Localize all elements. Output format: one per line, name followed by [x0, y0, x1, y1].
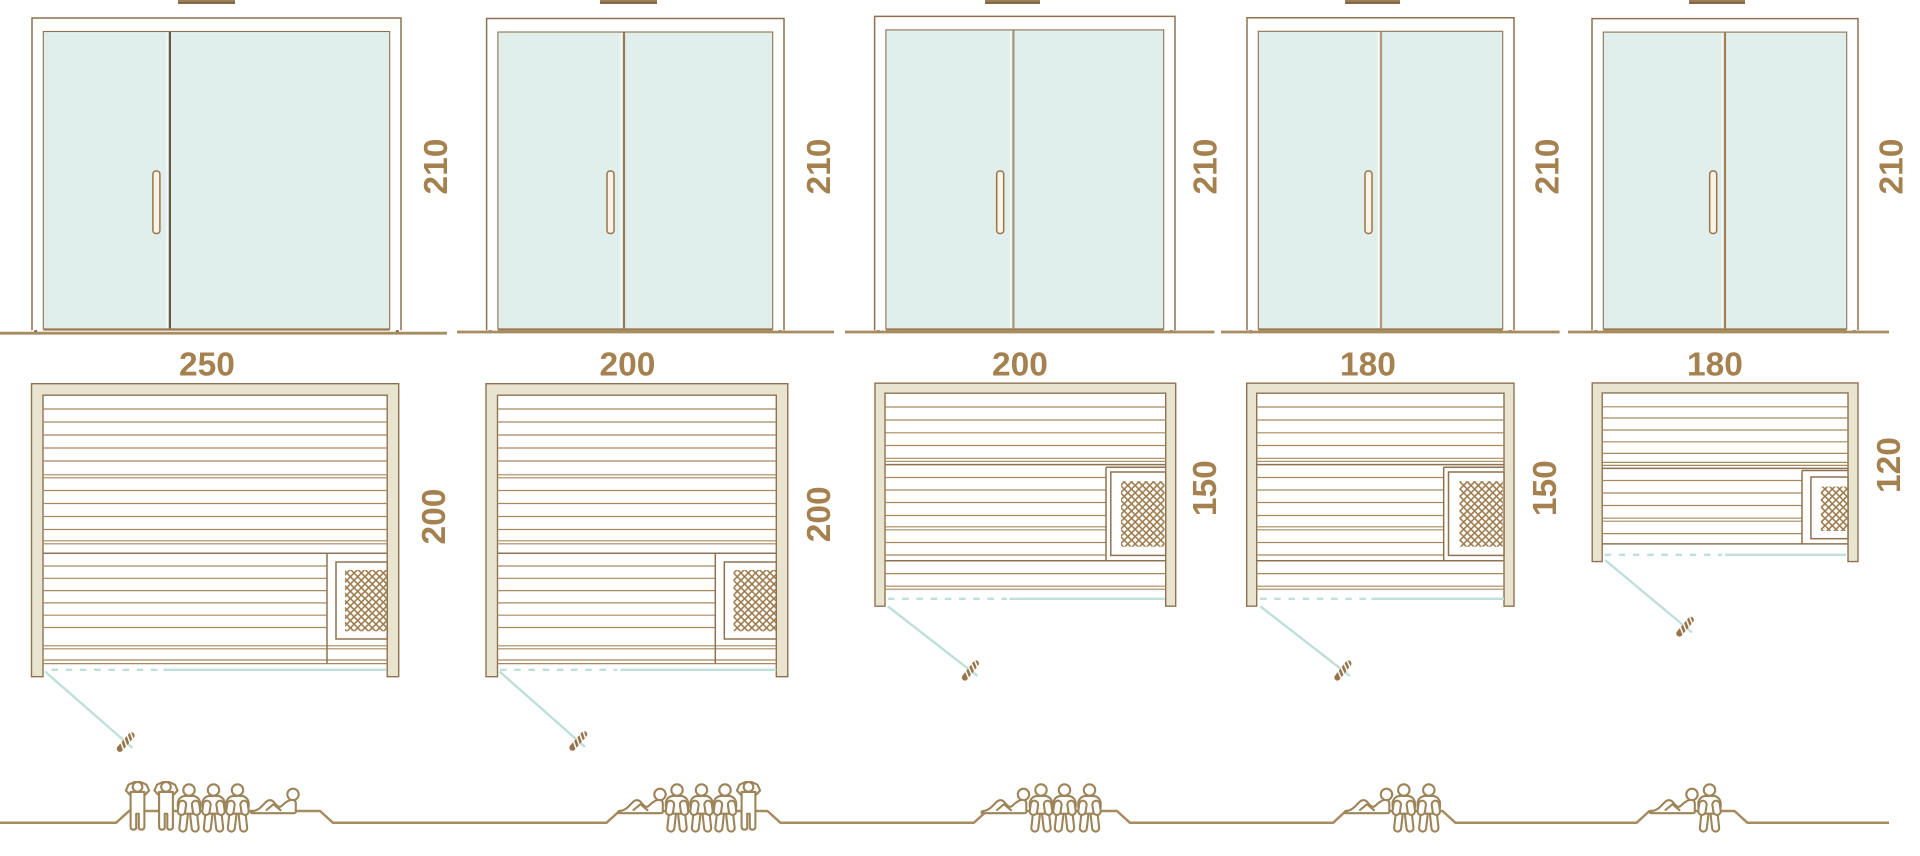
svg-text:120: 120	[1871, 437, 1908, 493]
svg-text:210: 210	[1188, 139, 1225, 195]
svg-text:150: 150	[1527, 460, 1564, 516]
svg-text:200: 200	[600, 347, 656, 384]
svg-text:200: 200	[992, 347, 1048, 384]
svg-text:250: 250	[179, 347, 235, 384]
svg-text:180: 180	[1687, 347, 1743, 384]
svg-text:210: 210	[1530, 139, 1567, 195]
svg-text:200: 200	[801, 486, 838, 542]
svg-text:210: 210	[418, 139, 455, 195]
svg-text:200: 200	[416, 489, 453, 545]
svg-text:180: 180	[1340, 347, 1396, 384]
svg-text:210: 210	[1874, 139, 1911, 195]
svg-text:150: 150	[1187, 460, 1224, 516]
svg-text:210: 210	[801, 139, 838, 195]
